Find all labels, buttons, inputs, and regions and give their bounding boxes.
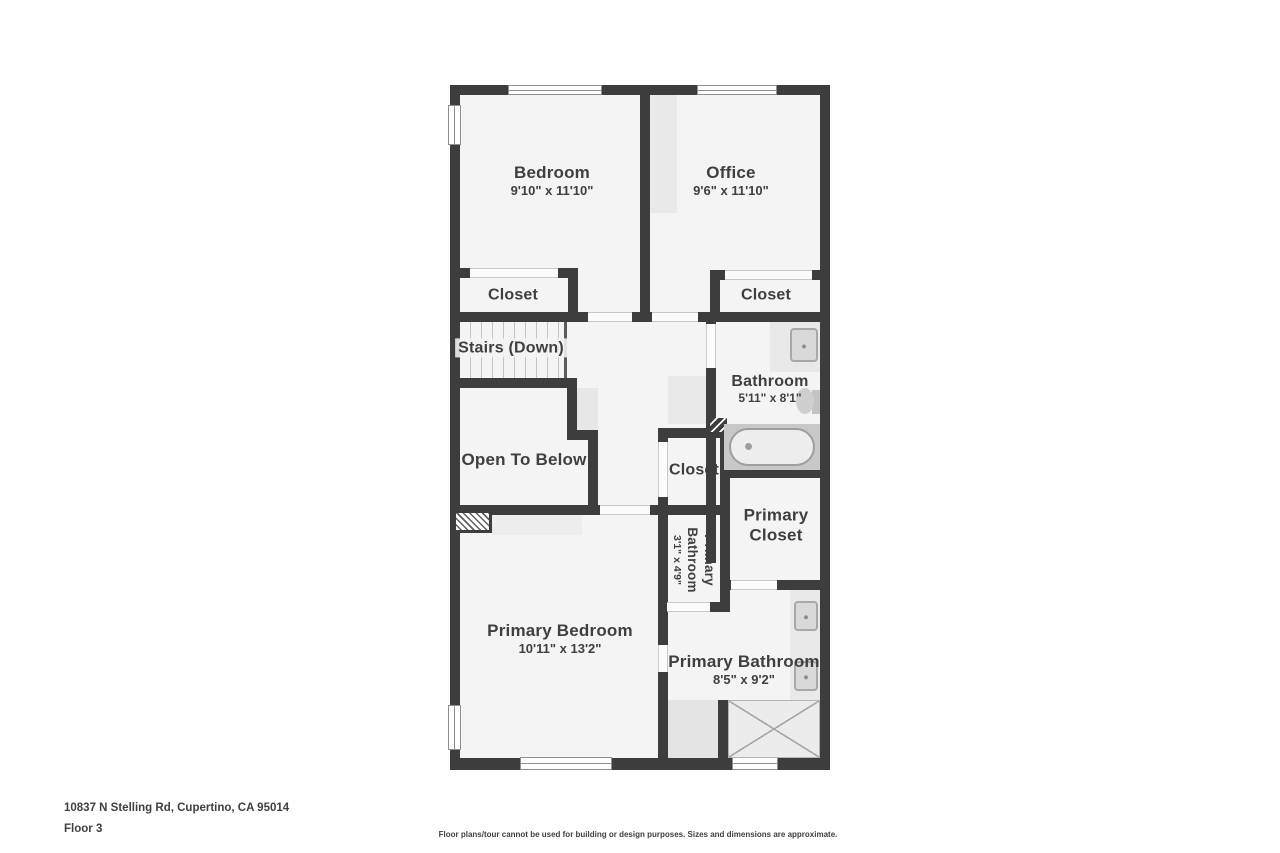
room-label-open-to-below: Open To Below bbox=[461, 450, 586, 470]
bedroom-floor-strip bbox=[578, 268, 640, 312]
room-label-bedroom: Bedroom 9'10" x 11'10" bbox=[511, 163, 594, 199]
primary-bedroom-window-bottom bbox=[520, 757, 612, 770]
bedroom-window-top bbox=[508, 85, 602, 95]
wall-exterior-right bbox=[820, 85, 830, 770]
wall-stairs-bottom bbox=[450, 378, 577, 388]
room-name: Primary Closet bbox=[730, 506, 822, 547]
room-dims: 9'6" x 11'10" bbox=[693, 183, 769, 199]
room-label-bathroom: Bathroom 5'11" x 8'1" bbox=[731, 372, 808, 406]
room-name: Primary Bathroom bbox=[683, 512, 717, 608]
hall-closet-door bbox=[658, 442, 668, 497]
room-label-office-closet: Closet bbox=[741, 285, 791, 304]
bedroom-door bbox=[588, 312, 632, 322]
room-name: Office bbox=[693, 163, 769, 183]
bathtub-icon bbox=[729, 428, 815, 466]
room-label-bedroom-closet: Closet bbox=[488, 285, 538, 304]
primary-bathroom-door bbox=[658, 645, 668, 672]
room-label-primary-bedroom: Primary Bedroom 10'11" x 13'2" bbox=[487, 621, 633, 657]
wall-exterior-left bbox=[450, 85, 460, 770]
primary-bedroom-door bbox=[600, 505, 650, 515]
room-name: Closet bbox=[669, 460, 719, 479]
room-name: Bathroom bbox=[731, 372, 808, 391]
wall-shower-left bbox=[718, 700, 728, 758]
room-name: Open To Below bbox=[461, 450, 586, 470]
room-name: Closet bbox=[488, 285, 538, 304]
wall-hall-top bbox=[450, 312, 830, 322]
bedroom-window-left bbox=[448, 105, 461, 145]
primary-bedroom-window-left bbox=[448, 705, 461, 750]
primary-bathroom-gray-floor bbox=[668, 700, 718, 758]
wall-bedroom-office-divider bbox=[640, 95, 650, 322]
room-label-stairs: Stairs (Down) bbox=[455, 338, 567, 357]
room-label-primary-closet: Primary Closet bbox=[730, 506, 822, 547]
office-closet-opening bbox=[725, 270, 812, 280]
office-floor-strip bbox=[650, 270, 710, 312]
hall-floor-lower bbox=[598, 430, 658, 505]
office-door bbox=[652, 312, 698, 322]
bathroom-sink-icon bbox=[790, 328, 818, 362]
chimney-hatch bbox=[453, 510, 492, 533]
bathtub-drain-icon bbox=[745, 443, 752, 450]
bathroom-door bbox=[706, 324, 716, 368]
hall-gray-patch bbox=[668, 376, 706, 424]
room-dims: 10'11" x 13'2" bbox=[487, 641, 633, 657]
room-dims: 5'11" x 8'1" bbox=[731, 391, 808, 405]
disclaimer-text: Floor plans/tour cannot be used for buil… bbox=[439, 830, 838, 839]
primary-bathroom-sink1-icon bbox=[794, 601, 818, 631]
floor-label: Floor 3 bbox=[64, 823, 102, 835]
office-window-top bbox=[697, 85, 777, 95]
room-name: Primary Bedroom bbox=[487, 621, 633, 641]
floor-plan: Bedroom 9'10" x 11'10" Office 9'6" x 11'… bbox=[450, 85, 830, 770]
primary-closet-door bbox=[731, 580, 777, 590]
property-address: 10837 N Stelling Rd, Cupertino, CA 95014 bbox=[64, 802, 289, 814]
bedroom-closet-opening bbox=[470, 268, 558, 278]
open-to-below-recess bbox=[577, 388, 598, 430]
bedroom-soffit bbox=[492, 515, 582, 535]
primary-bathroom-window-bottom bbox=[732, 757, 778, 770]
room-name: Stairs (Down) bbox=[458, 338, 564, 357]
wall-open-below-right-lower bbox=[588, 430, 598, 515]
room-label-primary-bathroom-small: Primary Bathroom 3'1" x 4'9" bbox=[671, 512, 717, 608]
room-name: Closet bbox=[741, 285, 791, 304]
room-dims: 8'5" x 9'2" bbox=[668, 672, 820, 688]
room-label-primary-bathroom: Primary Bathroom 8'5" x 9'2" bbox=[668, 652, 820, 688]
shower-icon bbox=[728, 700, 820, 758]
room-label-hall-closet: Closet bbox=[669, 460, 719, 479]
room-dims: 3'1" x 4'9" bbox=[671, 512, 684, 608]
office-wardrobe bbox=[650, 95, 677, 213]
room-name: Bedroom bbox=[511, 163, 594, 183]
room-name: Primary Bathroom bbox=[668, 652, 820, 672]
room-label-office: Office 9'6" x 11'10" bbox=[693, 163, 769, 199]
room-dims: 9'10" x 11'10" bbox=[511, 183, 594, 199]
